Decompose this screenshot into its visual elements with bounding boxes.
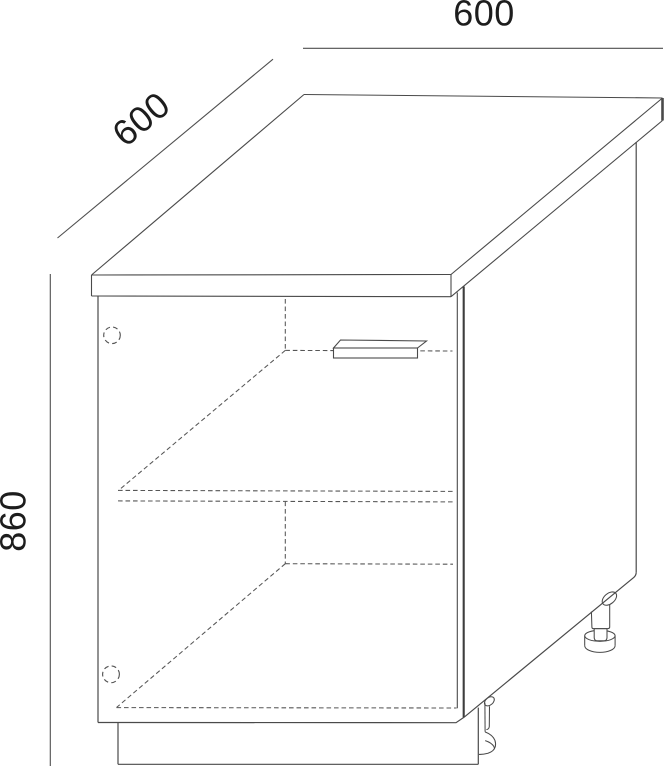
svg-text:860: 860 — [0, 490, 34, 552]
svg-text:600: 600 — [453, 0, 515, 34]
